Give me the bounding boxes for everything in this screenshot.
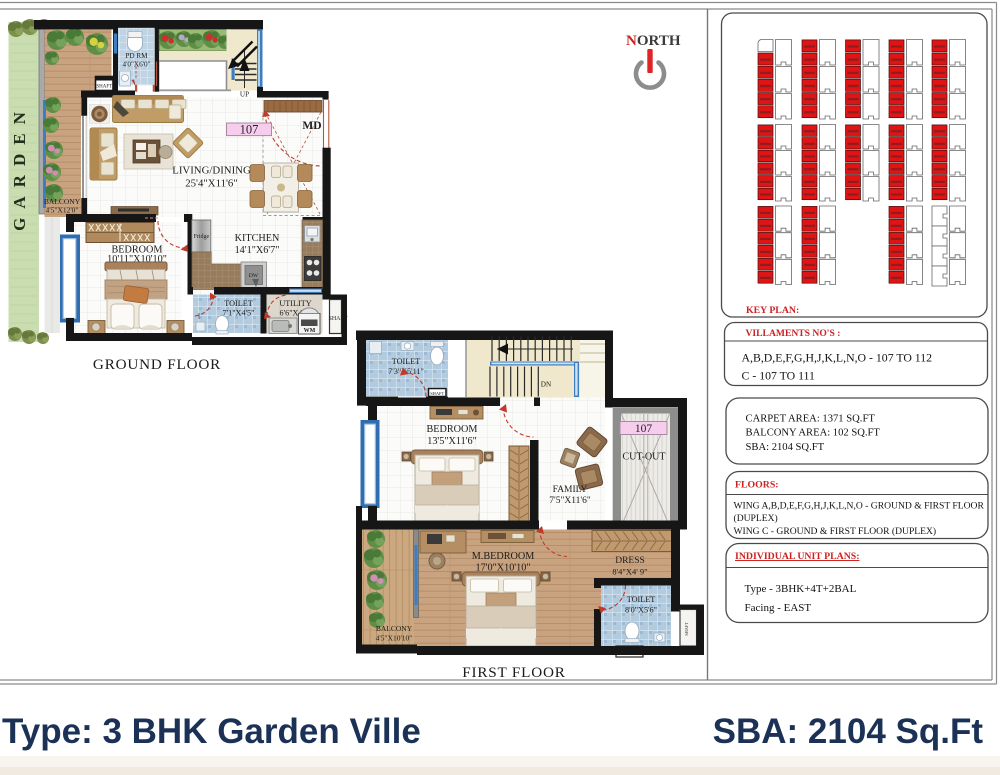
svg-text:(DUPLEX): (DUPLEX) (734, 513, 778, 524)
svg-text:FIRST FLOOR: FIRST FLOOR (462, 664, 566, 681)
svg-text:Type - 3BHK+4T+2BAL: Type - 3BHK+4T+2BAL (745, 583, 857, 595)
svg-text:Facing - EAST: Facing - EAST (745, 602, 812, 614)
svg-text:BEDROOM: BEDROOM (427, 424, 478, 435)
svg-text:DW: DW (249, 273, 259, 279)
svg-text:14'1"X6'7": 14'1"X6'7" (235, 245, 280, 256)
svg-text:BALCONY AREA: 102 SQ.FT: BALCONY AREA: 102 SQ.FT (746, 428, 881, 439)
svg-text:DN: DN (541, 381, 552, 389)
svg-text:C - 107 TO 111: C - 107 TO 111 (742, 369, 816, 383)
svg-text:INDIVIDUAL UNIT PLANS:: INDIVIDUAL UNIT PLANS: (735, 551, 859, 562)
svg-text:UTILITY: UTILITY (279, 299, 311, 308)
svg-text:KEY PLAN:: KEY PLAN: (746, 305, 799, 316)
svg-text:WM: WM (304, 328, 316, 334)
svg-text:DRESS: DRESS (615, 556, 645, 566)
svg-text:GARDEN: GARDEN (10, 103, 29, 231)
svg-text:BALCONY: BALCONY (376, 624, 413, 633)
svg-text:4'5"X12'0": 4'5"X12'0" (46, 206, 79, 215)
svg-text:13'5"X11'6": 13'5"X11'6" (427, 436, 477, 447)
svg-text:SHAFT: SHAFT (684, 622, 689, 636)
svg-text:107: 107 (635, 423, 653, 435)
svg-text:SBA: 2104 Sq.Ft: SBA: 2104 Sq.Ft (713, 712, 984, 751)
svg-text:WING A,B,D,E,F,G,H,J,K,L,N,O -: WING A,B,D,E,F,G,H,J,K,L,N,O - GROUND & … (734, 501, 985, 512)
svg-text:VILLAMENTS NO'S :: VILLAMENTS NO'S : (746, 328, 841, 339)
svg-text:FAMILY: FAMILY (553, 485, 588, 495)
svg-text:KITCHEN: KITCHEN (235, 233, 280, 244)
svg-text:GROUND FLOOR: GROUND FLOOR (93, 356, 221, 373)
svg-text:7'5"X11'6": 7'5"X11'6" (549, 496, 591, 506)
svg-text:Type: 3 BHK Garden Ville: Type: 3 BHK Garden Ville (2, 712, 421, 751)
svg-text:UP: UP (240, 91, 249, 99)
svg-text:TOILET: TOILET (627, 595, 656, 604)
svg-text:CUT-OUT: CUT-OUT (623, 452, 666, 463)
svg-text:FLOORS:: FLOORS: (735, 480, 779, 491)
svg-text:Fridge: Fridge (193, 234, 209, 240)
svg-text:4'5"X10'10": 4'5"X10'10" (376, 634, 413, 643)
svg-text:7'1"X4'5": 7'1"X4'5" (223, 309, 255, 318)
svg-text:A,B,D,E,F,G,H,J,K,L,N,O - 107: A,B,D,E,F,G,H,J,K,L,N,O - 107 TO 112 (742, 351, 933, 365)
svg-text:NORTH: NORTH (626, 33, 681, 49)
svg-text:TOILET: TOILET (224, 299, 253, 308)
svg-text:CARPET AREA: 1371 SQ.FT: CARPET AREA: 1371 SQ.FT (746, 414, 876, 425)
svg-text:SHAFT: SHAFT (430, 391, 444, 396)
svg-text:TOILET: TOILET (392, 357, 421, 366)
svg-text:M.BEDROOM: M.BEDROOM (472, 551, 535, 562)
svg-text:SHAFT: SHAFT (96, 85, 112, 90)
svg-text:107: 107 (240, 123, 259, 137)
svg-text:LIVING/DINING: LIVING/DINING (172, 165, 251, 177)
svg-text:8'4"X4' 9": 8'4"X4' 9" (612, 567, 647, 577)
svg-text:MD: MD (302, 120, 321, 132)
svg-text:4'0"X6'0": 4'0"X6'0" (122, 61, 150, 69)
svg-text:25'4"X11'6": 25'4"X11'6" (185, 178, 238, 190)
svg-text:PD RM: PD RM (125, 52, 148, 60)
svg-text:WING C - GROUND & FIRST FLOOR: WING C - GROUND & FIRST FLOOR (DUPLEX) (734, 526, 937, 537)
svg-text:8'0"X5'6": 8'0"X5'6" (625, 606, 657, 615)
svg-text:SBA: 2104 SQ.FT: SBA: 2104 SQ.FT (746, 442, 825, 453)
